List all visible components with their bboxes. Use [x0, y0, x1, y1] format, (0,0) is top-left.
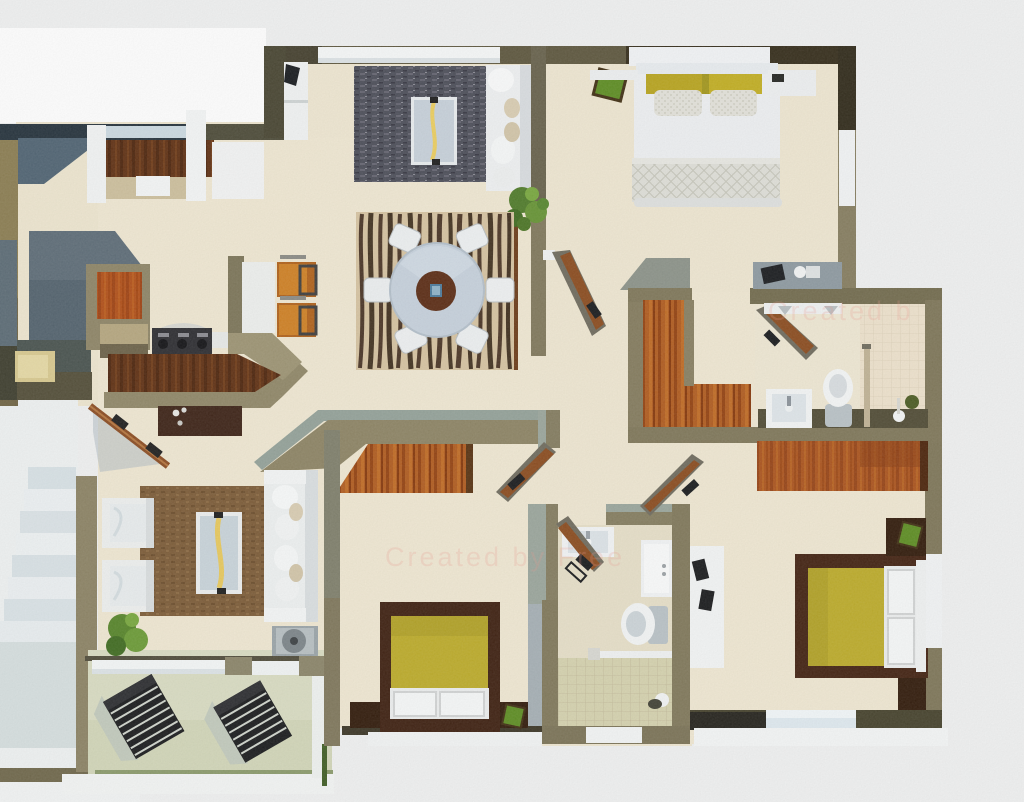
svg-text:Created b: Created b	[768, 296, 914, 326]
svg-text:Created by Free: Created by Free	[385, 542, 625, 572]
